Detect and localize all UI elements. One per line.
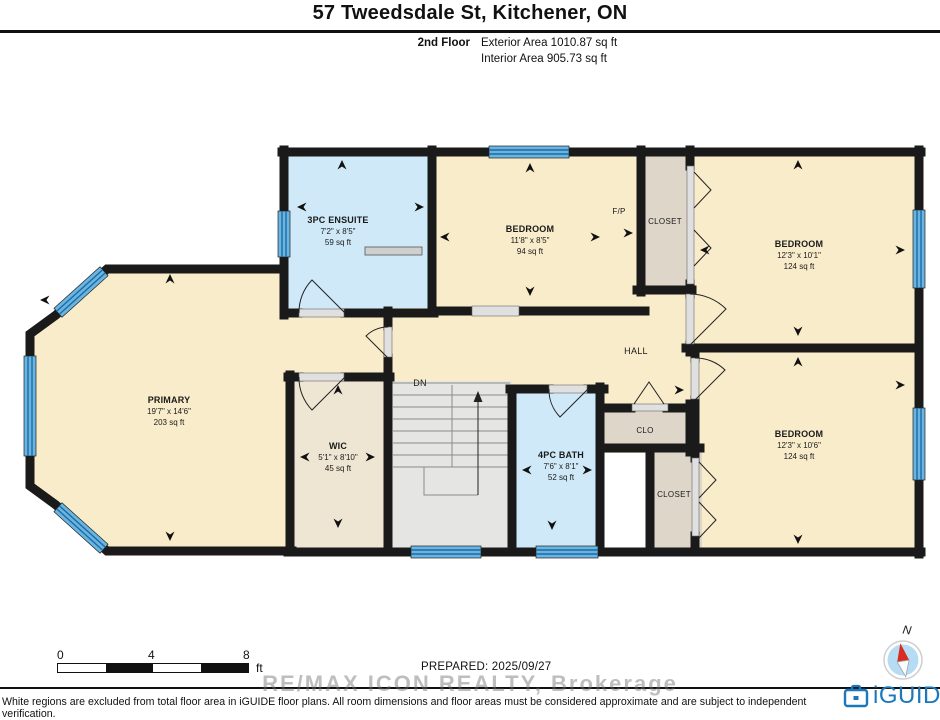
svg-text:203 sq ft: 203 sq ft — [154, 418, 185, 427]
label-closet-top: CLOSET — [648, 217, 682, 226]
window-icon — [278, 211, 290, 257]
svg-text:19'7" x 14'6": 19'7" x 14'6" — [147, 407, 191, 416]
label-wic: WIC — [329, 441, 347, 451]
room-bedroom-top-right — [692, 150, 921, 350]
svg-text:59 sq ft: 59 sq ft — [325, 238, 352, 247]
sliding-door-icon — [472, 306, 519, 316]
svg-text:124 sq ft: 124 sq ft — [784, 452, 815, 461]
label-bedroom-tr: BEDROOM — [775, 239, 823, 249]
iguide-briefcase-icon — [843, 683, 870, 709]
svg-text:12'3" x 10'1": 12'3" x 10'1" — [777, 251, 821, 260]
window-icon — [913, 210, 925, 288]
disclaimer-text: White regions are excluded from total fl… — [2, 696, 822, 720]
window-icon — [913, 408, 925, 480]
window-icon — [411, 546, 481, 558]
compass-n-label: N — [902, 622, 913, 637]
label-primary: PRIMARY — [148, 395, 191, 405]
window-icon — [536, 546, 598, 558]
brokerage-watermark: RE/MAX ICON REALTY, Brokerage — [0, 671, 940, 697]
scale-bar-ticks: 0 4 8 — [50, 648, 262, 660]
svg-text:7'6" x 8'1": 7'6" x 8'1" — [544, 462, 579, 471]
label-closet-bottom: CLOSET — [657, 490, 691, 499]
label-bedroom-mid: BEDROOM — [506, 224, 554, 234]
window-icon — [489, 146, 569, 158]
svg-text:94 sq ft: 94 sq ft — [517, 247, 544, 256]
label-bedroom-br: BEDROOM — [775, 429, 823, 439]
svg-text:52 sq ft: 52 sq ft — [548, 473, 575, 482]
towel-bar-icon — [365, 247, 422, 255]
room-ensuite — [286, 150, 434, 315]
window-icon — [24, 356, 36, 456]
svg-text:124 sq ft: 124 sq ft — [784, 262, 815, 271]
label-clo: CLO — [636, 426, 653, 435]
floor-plan-page: 57 Tweedsdale St, Kitchener, ON 2nd Floo… — [0, 0, 940, 720]
label-hall: HALL — [624, 346, 648, 356]
svg-text:7'2" x 8'5": 7'2" x 8'5" — [321, 227, 356, 236]
label-bath: 4PC BATH — [538, 450, 584, 460]
label-ensuite: 3PC ENSUITE — [307, 215, 368, 225]
floor-plan-drawing: 3PC ENSUITE 7'2" x 8'5" 59 sq ft BEDROOM… — [0, 0, 940, 720]
iguide-logo: iGUIDE — [843, 682, 940, 710]
svg-text:45 sq ft: 45 sq ft — [325, 464, 352, 473]
svg-text:11'8" x 8'5": 11'8" x 8'5" — [511, 236, 550, 245]
svg-text:12'3" x 10'6": 12'3" x 10'6" — [777, 441, 821, 450]
label-dn: DN — [413, 378, 427, 388]
svg-text:5'1" x 8'10": 5'1" x 8'10" — [318, 453, 358, 462]
label-fireplace: F/P — [612, 207, 625, 216]
